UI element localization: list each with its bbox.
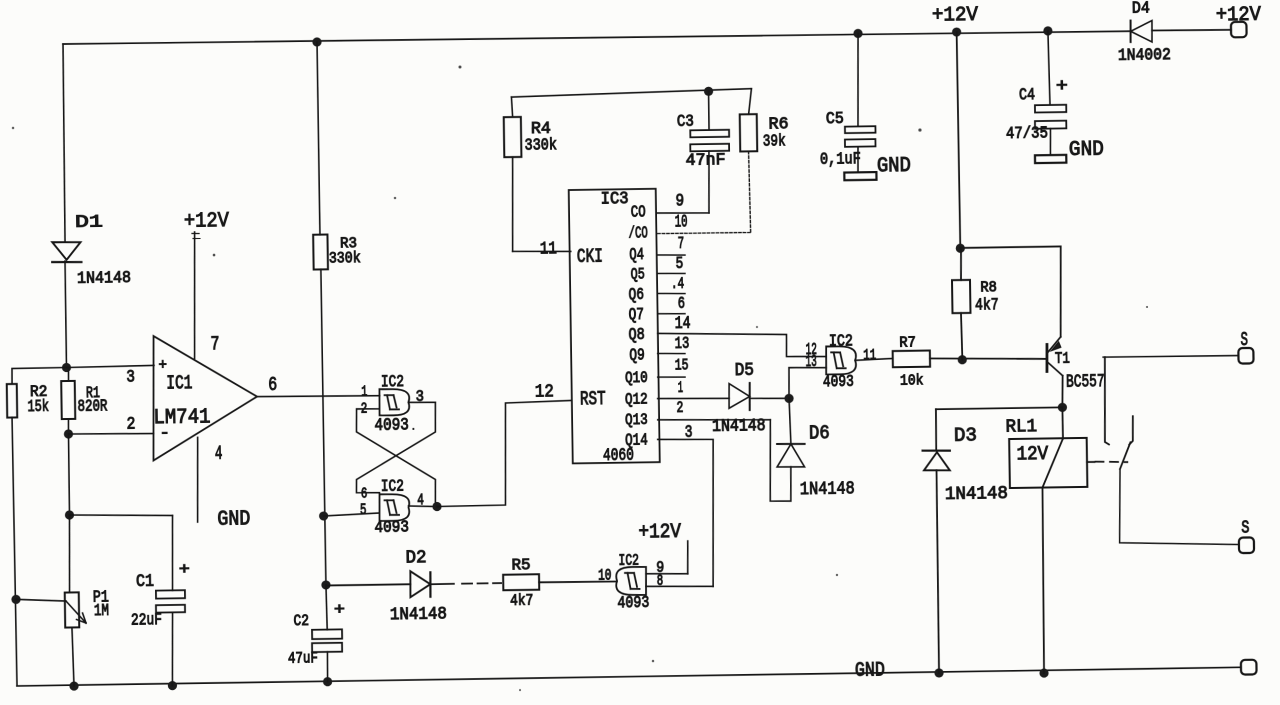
svg-text:2: 2: [361, 400, 368, 418]
svg-text:IC2: IC2: [381, 373, 404, 392]
svg-text:1N4148: 1N4148: [77, 269, 131, 289]
svg-text:D2: D2: [405, 548, 426, 568]
svg-text:4: 4: [417, 491, 424, 509]
svg-text:1N4148: 1N4148: [945, 484, 1008, 505]
svg-text:S: S: [1240, 329, 1248, 351]
svg-text:6: 6: [361, 484, 368, 502]
svg-text:15: 15: [675, 356, 689, 374]
svg-text:3: 3: [685, 423, 693, 443]
svg-text:GND: GND: [855, 660, 885, 683]
svg-text:Q6: Q6: [628, 286, 644, 305]
svg-text:5: 5: [675, 255, 683, 274]
svg-text:1N4002: 1N4002: [1118, 46, 1171, 66]
svg-text:IC2: IC2: [381, 478, 404, 497]
svg-text:IC3: IC3: [601, 189, 629, 209]
svg-text:IC2: IC2: [618, 551, 639, 569]
svg-text:CKI: CKI: [577, 246, 603, 268]
svg-text:Q14: Q14: [625, 431, 648, 450]
svg-text:IC2: IC2: [829, 332, 853, 351]
svg-text:C3: C3: [677, 112, 694, 131]
svg-text:1: 1: [361, 383, 367, 401]
svg-text:1N4148: 1N4148: [800, 480, 855, 501]
svg-text:4093: 4093: [374, 518, 409, 538]
svg-text:10k: 10k: [900, 371, 924, 389]
svg-text:6: 6: [678, 295, 686, 314]
svg-text:14: 14: [675, 314, 691, 334]
svg-text:820R: 820R: [77, 398, 107, 417]
svg-text:Q12: Q12: [625, 390, 648, 408]
svg-text:.: .: [411, 424, 415, 431]
svg-text:3: 3: [416, 388, 425, 406]
svg-text:/CO: /CO: [628, 224, 647, 243]
svg-text:-: -: [159, 424, 170, 442]
svg-text:10: 10: [598, 566, 612, 584]
svg-text:11: 11: [863, 346, 876, 364]
svg-text:CO: CO: [631, 203, 646, 222]
svg-text:RL1: RL1: [1005, 417, 1037, 437]
svg-text:0,1uF: 0,1uF: [820, 150, 861, 170]
svg-text:4093: 4093: [617, 594, 649, 613]
svg-text:Q5: Q5: [631, 265, 645, 283]
svg-text:D1: D1: [75, 213, 103, 233]
svg-text:11: 11: [540, 239, 557, 259]
svg-text:IC1: IC1: [166, 372, 192, 394]
svg-text:1N4148: 1N4148: [712, 416, 766, 437]
svg-text:R8: R8: [980, 280, 997, 296]
svg-text:6: 6: [268, 374, 277, 396]
svg-text:+12V: +12V: [932, 4, 979, 28]
svg-text:D3: D3: [954, 425, 977, 447]
svg-text:Q13: Q13: [625, 411, 648, 429]
svg-text:2: 2: [676, 399, 683, 417]
svg-text:+: +: [179, 561, 190, 579]
svg-text:GND: GND: [1069, 138, 1104, 163]
svg-text:47nF: 47nF: [685, 151, 725, 171]
svg-text:+: +: [334, 601, 345, 619]
svg-text:D5: D5: [735, 361, 755, 381]
svg-text:C5: C5: [826, 110, 844, 129]
svg-text:9: 9: [675, 191, 684, 211]
svg-text:47uF: 47uF: [288, 650, 318, 668]
svg-text:+: +: [158, 358, 167, 374]
svg-text:RST: RST: [580, 388, 606, 410]
svg-text:BC557: BC557: [1066, 372, 1105, 393]
svg-text:4: 4: [215, 443, 223, 465]
svg-text:13: 13: [805, 353, 816, 372]
svg-text:13: 13: [675, 335, 690, 354]
svg-text:2: 2: [126, 414, 135, 434]
svg-text:Q7: Q7: [628, 306, 644, 325]
svg-text:Q8: Q8: [628, 326, 644, 345]
svg-text:330k: 330k: [524, 136, 557, 155]
svg-text:4093: 4093: [374, 416, 409, 437]
svg-text:Q10: Q10: [625, 369, 648, 387]
svg-text:+12V: +12V: [638, 521, 681, 545]
svg-text:5: 5: [360, 501, 367, 519]
svg-text:10: 10: [675, 212, 688, 232]
svg-text:330k: 330k: [329, 249, 361, 267]
svg-text:4k7: 4k7: [975, 296, 999, 315]
svg-text:15k: 15k: [27, 398, 49, 417]
svg-text:12: 12: [535, 382, 554, 402]
svg-text:C1: C1: [136, 572, 154, 592]
svg-text:12V: 12V: [1016, 443, 1048, 465]
svg-text:+12V: +12V: [1216, 4, 1262, 28]
svg-text:22uF: 22uF: [131, 611, 162, 630]
svg-text:S: S: [1241, 518, 1249, 538]
svg-text:GND: GND: [217, 508, 250, 532]
svg-text:1M: 1M: [94, 602, 109, 621]
svg-text:8: 8: [657, 574, 664, 590]
svg-text:47/35: 47/35: [1006, 124, 1048, 144]
svg-text:.4: .4: [671, 275, 685, 293]
svg-text:1: 1: [678, 379, 683, 397]
svg-text:1N4148: 1N4148: [390, 604, 447, 625]
svg-text:+12V: +12V: [184, 209, 229, 234]
svg-text:4k7: 4k7: [510, 591, 533, 609]
svg-text:GND: GND: [877, 154, 911, 179]
svg-text:39k: 39k: [763, 132, 786, 151]
svg-text:D6: D6: [809, 422, 830, 444]
svg-text:C4: C4: [1019, 86, 1035, 105]
svg-text:4093: 4093: [823, 373, 854, 392]
svg-text:C2: C2: [293, 612, 309, 630]
svg-text:Q9: Q9: [629, 346, 645, 365]
svg-text:7: 7: [678, 235, 685, 254]
svg-text:Q4: Q4: [629, 246, 644, 265]
svg-text:R5: R5: [511, 556, 530, 574]
svg-text:+: +: [1056, 77, 1068, 97]
svg-text:D4: D4: [1132, 0, 1150, 19]
svg-text:R7: R7: [899, 333, 916, 351]
svg-text:3: 3: [126, 367, 135, 387]
svg-text:7: 7: [210, 333, 219, 355]
svg-text:T1: T1: [1055, 350, 1070, 368]
